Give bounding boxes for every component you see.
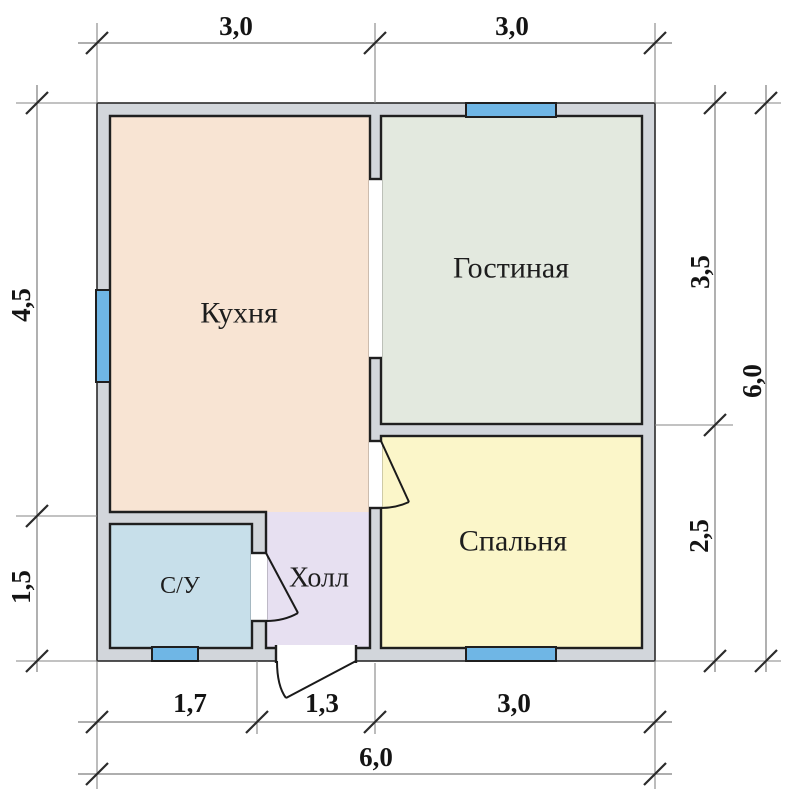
label-kitchen: Кухня [200, 297, 278, 330]
dim-top-seg2: 3,0 [495, 11, 529, 41]
dim-right-total: 6,0 [737, 364, 767, 398]
dim-bottom-seg3: 3,0 [497, 688, 531, 718]
window-bathroom-bottom [152, 647, 198, 661]
dim-bottom-seg2: 1,3 [305, 688, 339, 718]
dim-right-seg1: 3,5 [685, 255, 715, 289]
dim-top-seg1: 3,0 [219, 11, 253, 41]
floor-plan-drawing: 3,0 3,0 4,5 1,5 3,5 2,5 6,0 1,7 1,3 3,0 … [0, 0, 800, 800]
dim-left-seg2: 1,5 [6, 570, 36, 604]
bedroom-door-opening [369, 441, 382, 508]
bathroom-door-opening [251, 553, 267, 621]
window-kitchen-left [96, 290, 110, 382]
dim-bottom-total: 6,0 [359, 742, 393, 772]
dim-left-seg1: 4,5 [6, 288, 36, 322]
label-hall: Холл [289, 563, 349, 594]
window-bedroom-bottom [466, 647, 556, 661]
dim-bottom-seg1: 1,7 [173, 688, 207, 718]
floor-plan-page: 3,0 3,0 4,5 1,5 3,5 2,5 6,0 1,7 1,3 3,0 … [0, 0, 800, 800]
dim-right-seg2: 2,5 [684, 519, 714, 553]
entrance-door-arc [277, 661, 286, 698]
label-living: Гостиная [453, 252, 569, 285]
label-bedroom: Спальня [459, 525, 567, 558]
entrance-door-opening [276, 645, 356, 663]
passage-kitchen-living [369, 179, 382, 358]
label-bathroom: С/У [160, 573, 200, 599]
window-living-top [466, 103, 556, 117]
